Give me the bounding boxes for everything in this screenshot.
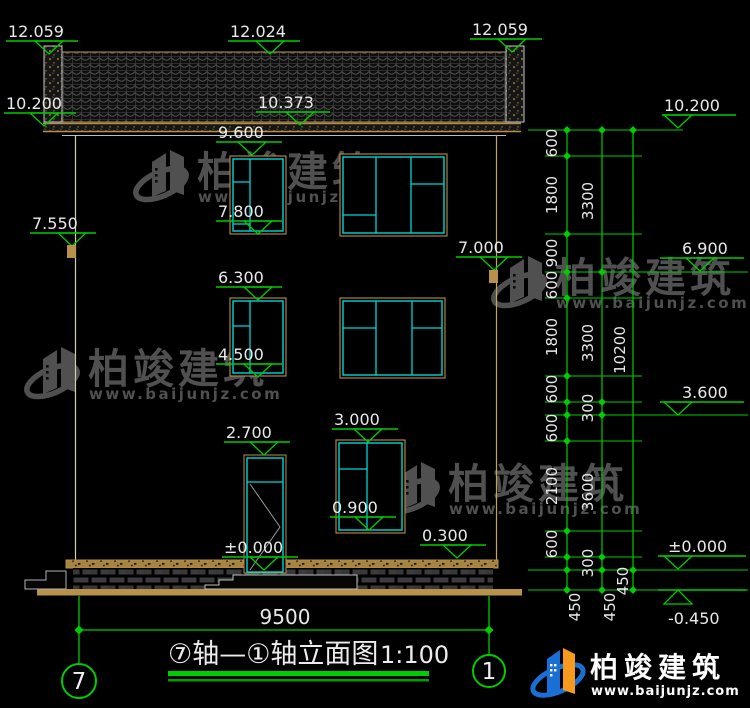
watermark-building-icon — [61, 347, 75, 392]
logo-window-dot — [554, 664, 556, 666]
elevation-label: 10.200 — [6, 94, 62, 113]
elevation-label: 2.700 — [226, 423, 272, 442]
elevation-label: 7.800 — [218, 202, 264, 221]
drawing-title: ⑦轴—①轴立面图 — [168, 639, 378, 670]
watermark-url: www.baijunjz.com — [556, 294, 749, 312]
elevation-label: 12.024 — [230, 22, 286, 41]
logo-building-orange-icon — [563, 648, 575, 694]
elevation-label: 0.300 — [422, 526, 468, 545]
roof — [43, 46, 524, 136]
chain-dimension-label: 10200 — [611, 326, 629, 374]
chain-dimension-label: 600 — [543, 375, 561, 404]
watermark-window-dot — [406, 480, 409, 483]
wall-reference-tick — [489, 270, 498, 283]
axis-number-1: 1 — [482, 659, 497, 685]
elevation-drawing-canvas: 柏竣建筑www.baijunjz.com柏竣建筑www.baijunjz.com… — [0, 0, 750, 708]
logo-window-dot — [550, 669, 552, 671]
window — [230, 156, 286, 234]
watermark-url: www.baijunjz.com — [89, 385, 282, 403]
chain-dimension-label: 600 — [543, 129, 561, 158]
axis-number-7: 7 — [72, 669, 87, 695]
title-underline-thin — [168, 679, 429, 682]
chain-dimension-label: 3600 — [579, 473, 597, 511]
chain-dimension-label: 900 — [543, 239, 561, 268]
elevation-label: ±0.000 — [668, 537, 727, 556]
width-dimension-text: 9500 — [260, 605, 311, 629]
chain-dimension-label: 300 — [579, 394, 597, 423]
elevation-label: 0.900 — [332, 498, 378, 517]
title-underline-thick — [168, 671, 429, 676]
chain-dimension-label: 1800 — [543, 176, 561, 214]
elevation-label: ±0.000 — [224, 538, 283, 557]
chain-dimension-label: 600 — [543, 414, 561, 443]
elevation-label: -0.450 — [668, 609, 720, 628]
roof-right-edge-cap — [506, 46, 524, 122]
watermark-window-dot — [46, 371, 49, 374]
cad-elevation-screenshot: 柏竣建筑www.baijunjz.com柏竣建筑www.baijunjz.com… — [0, 0, 750, 708]
chain-dimension-label: 450 — [601, 593, 619, 622]
watermark-window-dot — [513, 274, 516, 277]
elevation-label: 4.500 — [218, 345, 264, 364]
watermark-window-dot — [513, 286, 516, 289]
chain-dimension-label: 2100 — [543, 467, 561, 505]
drawing-scale: 1:100 — [380, 641, 449, 669]
elevation-label: 7.000 — [458, 238, 504, 257]
elevation-label: 7.550 — [32, 214, 78, 233]
logo-window-dot — [554, 669, 556, 671]
elevation-label: 3.000 — [334, 410, 380, 429]
roof-fascia-band — [43, 125, 521, 131]
chain-dimension-label: 450 — [614, 567, 632, 596]
logo-company-name: 柏竣建筑 — [590, 651, 726, 684]
watermark-window-dot — [155, 168, 158, 171]
chain-dimension-label: 600 — [543, 530, 561, 559]
ground-line — [37, 589, 522, 596]
elevation-label: 9.600 — [218, 123, 264, 142]
watermark-building-icon — [170, 150, 184, 195]
chain-dimension-label: 3300 — [579, 182, 597, 220]
elevation-label: 10.200 — [664, 96, 720, 115]
watermark-window-dot — [46, 377, 49, 380]
elevation-label: 10.373 — [258, 93, 314, 112]
logo-website-url: www.baijunjz.com — [591, 684, 740, 699]
watermark-window-dot — [406, 492, 409, 495]
window — [336, 440, 405, 533]
watermark-building-icon — [528, 256, 542, 301]
elevation-label: 3.600 — [682, 383, 728, 402]
drawing-title-block: ⑦轴—①轴立面图 1:100 — [168, 639, 449, 682]
watermark-window-dot — [155, 174, 158, 177]
elevation-label: 12.059 — [8, 22, 64, 41]
chain-dimension-label: 300 — [579, 549, 597, 578]
elevation-label: 12.059 — [472, 20, 528, 39]
chain-dimension-label: 450 — [566, 593, 584, 622]
window — [340, 154, 447, 236]
watermark-window-dot — [406, 486, 409, 489]
logo-window-dot — [550, 674, 552, 676]
watermark-window-dot — [46, 365, 49, 368]
wall-reference-tick — [67, 245, 76, 258]
window-outer-frame — [340, 154, 447, 236]
window-outer-frame — [336, 440, 405, 533]
watermark-window-dot — [513, 280, 516, 283]
window-outer-frame — [230, 156, 286, 234]
watermark-building-icon — [421, 462, 435, 507]
window-outer-frame — [340, 298, 445, 378]
elevation-label: 6.300 — [218, 268, 264, 287]
chain-dimension-label: 600 — [543, 271, 561, 300]
logo-window-dot — [550, 664, 552, 666]
elevation-label: 6.900 — [682, 239, 728, 258]
window — [340, 298, 445, 378]
chain-dimension-label: 3300 — [579, 324, 597, 362]
chain-dimension-label: 1800 — [543, 318, 561, 356]
watermark-window-dot — [155, 180, 158, 183]
